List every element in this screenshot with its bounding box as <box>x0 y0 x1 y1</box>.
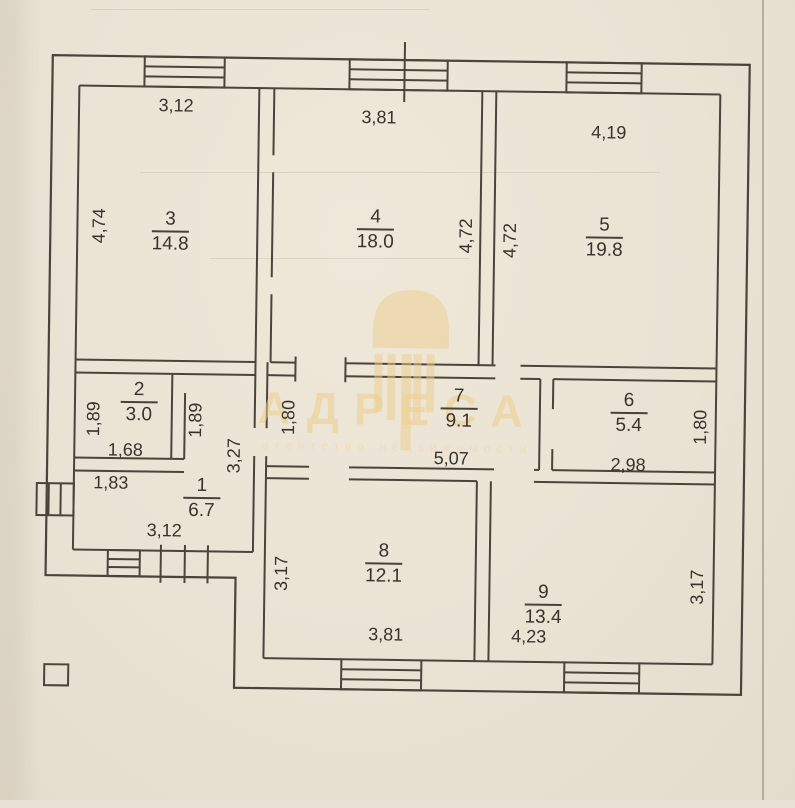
dim-room2-left: 1,89 <box>83 401 104 436</box>
dim-room7-bottom: 5,07 <box>434 448 469 469</box>
room-area: 18.0 <box>357 230 394 253</box>
room-area: 13.4 <box>524 606 561 629</box>
room-3-label: 3 14.8 <box>152 208 190 255</box>
dim-room2-right: 1,89 <box>185 403 206 438</box>
outer-walls <box>44 55 750 695</box>
dim-room1-right: 3,27 <box>223 438 244 473</box>
dim-room9-right: 3,17 <box>687 570 708 605</box>
floor-plan-svg <box>0 0 795 808</box>
dim-room7-left: 1,80 <box>278 400 299 435</box>
room-number: 4 <box>357 206 394 231</box>
room-area: 6.7 <box>183 499 220 522</box>
room-number: 9 <box>525 582 562 607</box>
dim-room8-bottom: 3,81 <box>368 624 403 645</box>
dim-room4-top: 3,81 <box>361 107 396 128</box>
dim-room3-left: 4,74 <box>89 208 110 243</box>
room-number: 2 <box>121 379 158 404</box>
room-area: 19.8 <box>585 239 622 262</box>
dim-room3-top: 3,12 <box>158 95 193 116</box>
room-area: 9.1 <box>440 410 477 433</box>
watermark-logo-icon <box>371 290 449 451</box>
dim-room2-bottom: 1,68 <box>108 439 143 460</box>
room-number: 6 <box>611 390 648 415</box>
window-room3 <box>144 56 224 87</box>
room-number: 5 <box>586 214 623 239</box>
dim-room5-top: 4,19 <box>591 122 626 143</box>
window-room5 <box>566 62 641 93</box>
room-4-label: 4 18.0 <box>357 206 395 253</box>
dim-room1-top: 1,83 <box>93 472 128 493</box>
room-number: 3 <box>152 208 189 233</box>
room-number: 1 <box>183 475 220 500</box>
room-9-label: 9 13.4 <box>524 582 562 629</box>
cellar-marker <box>44 664 68 685</box>
dim-room5-left: 4,72 <box>500 223 521 258</box>
dim-room4-right: 4,72 <box>456 218 477 253</box>
window-left-wall <box>36 483 73 516</box>
room-area: 5.4 <box>610 414 647 437</box>
room-1-label: 1 6.7 <box>183 475 220 522</box>
room-number: 7 <box>441 385 478 410</box>
dim-room9-bottom: 4,23 <box>511 626 546 647</box>
dim-room6-bottom: 2,98 <box>610 454 645 475</box>
window-room8 <box>341 659 421 690</box>
room-number: 8 <box>365 540 402 565</box>
floor-plan: АДРЕСА агентство недвижимости 3 14.8 4 1… <box>0 0 795 808</box>
room-area: 12.1 <box>365 565 402 588</box>
room-area: 14.8 <box>152 233 189 256</box>
room-2-label: 2 3.0 <box>120 379 157 426</box>
window-room9 <box>564 662 639 693</box>
room-8-label: 8 12.1 <box>365 540 403 587</box>
scanned-paper-background: АДРЕСА агентство недвижимости 3 14.8 4 1… <box>0 0 795 800</box>
room-5-label: 5 19.8 <box>585 214 623 261</box>
window-room1-entrance <box>108 550 140 576</box>
window-room4 <box>349 59 447 90</box>
room-area: 3.0 <box>120 403 157 426</box>
room-6-label: 6 5.4 <box>610 390 647 437</box>
room-7-label: 7 9.1 <box>440 385 477 432</box>
dim-room1-bottom: 3,12 <box>147 520 182 541</box>
dim-room8-left: 3,17 <box>271 556 292 591</box>
dim-room6-right: 1,80 <box>690 410 711 445</box>
